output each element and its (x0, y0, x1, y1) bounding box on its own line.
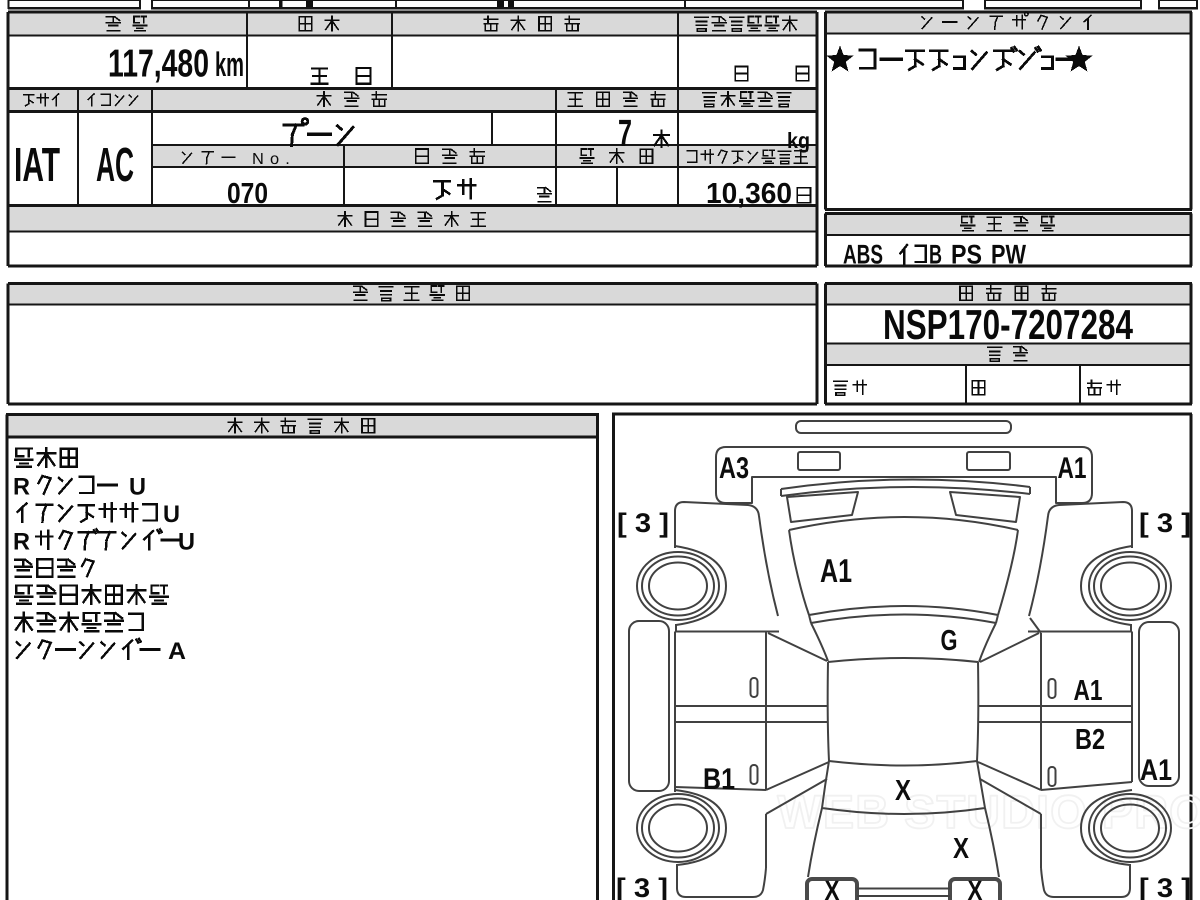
svg-text:U: U (129, 474, 146, 501)
svg-text:B: B (929, 240, 942, 270)
svg-text:[ 3 ]: [ 3 ] (616, 873, 668, 900)
svg-text:B1: B1 (703, 763, 735, 796)
svg-text:[ 3 ]: [ 3 ] (617, 508, 669, 538)
svg-text:G: G (941, 625, 958, 657)
svg-text:117,480: 117,480 (108, 43, 209, 86)
svg-text:A1: A1 (820, 552, 852, 589)
svg-text:kg: kg (787, 128, 810, 153)
svg-text:X: X (968, 875, 983, 900)
svg-text:PW: PW (991, 240, 1026, 270)
svg-text:[ 3 ]: [ 3 ] (1139, 508, 1191, 538)
svg-text:7: 7 (618, 113, 632, 155)
svg-text:A3: A3 (719, 452, 749, 485)
svg-text:PS: PS (951, 240, 982, 270)
svg-text:R: R (13, 474, 30, 501)
svg-text:A1: A1 (1140, 754, 1172, 787)
svg-text:WEB STUDIO PRO: WEB STUDIO PRO (777, 785, 1200, 838)
svg-text:U: U (178, 529, 195, 556)
svg-text:X: X (953, 833, 970, 865)
svg-text:U: U (163, 501, 180, 528)
svg-text:km: km (215, 46, 244, 84)
svg-text:X: X (825, 875, 840, 900)
svg-text:070: 070 (227, 178, 268, 210)
svg-text:B2: B2 (1075, 724, 1105, 756)
svg-text:A1: A1 (1074, 675, 1103, 707)
svg-text:No.: No. (252, 151, 296, 168)
svg-text:ABS: ABS (843, 240, 883, 270)
svg-text:[ 3 ]: [ 3 ] (1139, 873, 1191, 900)
svg-text:R: R (13, 529, 30, 556)
svg-text:IAT: IAT (14, 139, 60, 192)
svg-text:A1: A1 (1058, 452, 1087, 485)
svg-text:NSP170-7207284: NSP170-7207284 (883, 301, 1133, 348)
svg-text:X: X (895, 775, 912, 807)
svg-text:10,360: 10,360 (706, 178, 792, 210)
svg-text:A: A (168, 638, 186, 665)
svg-text:AC: AC (96, 139, 134, 192)
